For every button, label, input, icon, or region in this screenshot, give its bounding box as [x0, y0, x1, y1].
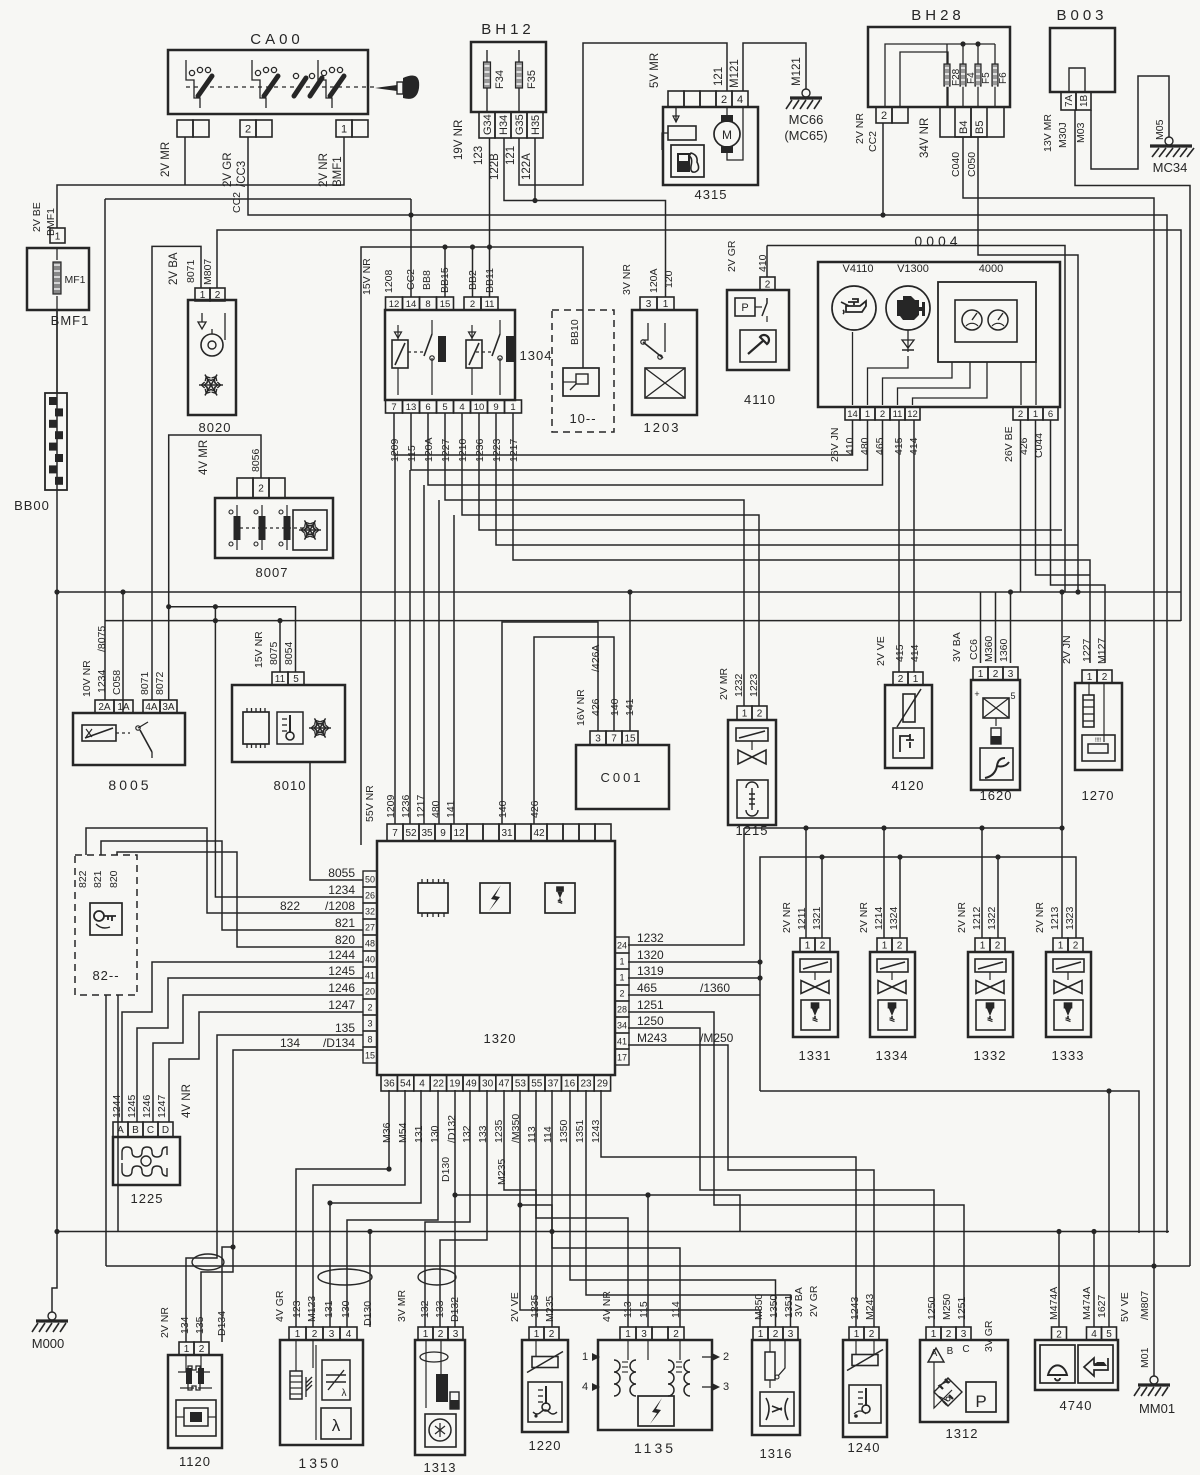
svg-text:1322: 1322 [986, 906, 998, 930]
svg-text:1: 1 [619, 973, 624, 983]
svg-text:MC34: MC34 [1153, 160, 1188, 175]
svg-text:35: 35 [421, 828, 433, 839]
svg-text:13: 13 [406, 402, 417, 413]
svg-text:480: 480 [430, 800, 442, 818]
svg-text:1: 1 [295, 1329, 301, 1340]
svg-text:822: 822 [77, 870, 89, 888]
svg-text:1251: 1251 [637, 998, 664, 1012]
svg-text:28: 28 [617, 1005, 627, 1015]
svg-text:140: 140 [497, 800, 509, 818]
svg-text:M235: M235 [496, 1159, 508, 1185]
svg-text:M05: M05 [1154, 119, 1166, 140]
svg-text:1: 1 [663, 299, 669, 310]
svg-text:47: 47 [498, 1079, 510, 1090]
svg-text:1323: 1323 [1064, 906, 1076, 930]
svg-text:1316: 1316 [760, 1446, 793, 1461]
svg-text:G34: G34 [482, 114, 494, 135]
svg-text:M121: M121 [729, 59, 741, 88]
svg-text:17: 17 [617, 1053, 627, 1063]
svg-text:P: P [741, 302, 748, 314]
svg-text:1227: 1227 [440, 438, 452, 462]
svg-text:1247: 1247 [328, 998, 355, 1012]
svg-text:5: 5 [1106, 1329, 1112, 1340]
svg-text:1234: 1234 [328, 883, 355, 897]
svg-text:1313: 1313 [424, 1460, 457, 1475]
svg-text:10: 10 [474, 402, 485, 413]
svg-text:130: 130 [429, 1125, 441, 1143]
svg-text:7: 7 [391, 402, 396, 413]
svg-text:M03: M03 [1075, 122, 1087, 143]
svg-text:1: 1 [1058, 941, 1064, 952]
svg-text:M121: M121 [791, 57, 803, 86]
svg-text:1: 1 [1087, 672, 1093, 683]
svg-text:410: 410 [844, 437, 856, 455]
svg-text:1203: 1203 [644, 420, 681, 435]
svg-text:12: 12 [389, 299, 400, 310]
svg-text:465: 465 [637, 981, 657, 995]
svg-text:B5: B5 [974, 121, 986, 134]
svg-text:M000: M000 [32, 1336, 65, 1351]
svg-text:1324: 1324 [888, 906, 900, 930]
svg-text:15: 15 [624, 734, 636, 745]
svg-text:54: 54 [400, 1079, 412, 1090]
svg-text:MF1: MF1 [65, 274, 86, 286]
svg-text:B: B [947, 1346, 954, 1357]
svg-text:1244: 1244 [111, 1094, 123, 1118]
svg-text:2: 2 [765, 280, 771, 291]
svg-text:3: 3 [1008, 669, 1014, 680]
svg-text:1: 1 [742, 709, 748, 720]
svg-text:2: 2 [245, 123, 251, 135]
svg-text:2V NR: 2V NR [854, 113, 866, 144]
svg-text:134: 134 [179, 1316, 191, 1334]
svg-text:3A: 3A [162, 702, 175, 713]
svg-text:1: 1 [865, 409, 870, 420]
svg-text:2: 2 [673, 1329, 679, 1340]
svg-text:122B: 122B [489, 153, 501, 180]
svg-text:4740: 4740 [1060, 1398, 1093, 1413]
svg-text:5: 5 [293, 674, 299, 685]
svg-text:1350: 1350 [768, 1294, 780, 1318]
svg-text:13V MR: 13V MR [1042, 114, 1054, 152]
svg-text:34: 34 [617, 1021, 627, 1031]
svg-text:1223: 1223 [748, 673, 760, 697]
svg-text:8: 8 [367, 1035, 372, 1045]
svg-text:2: 2 [723, 1351, 729, 1363]
svg-text:2: 2 [312, 1329, 318, 1340]
svg-text:12: 12 [907, 409, 918, 420]
svg-text:1223: 1223 [491, 438, 503, 462]
svg-text:55: 55 [531, 1079, 543, 1090]
svg-text:3V NR: 3V NR [621, 264, 633, 295]
svg-text:1: 1 [184, 1344, 190, 1355]
svg-text:3: 3 [961, 1329, 967, 1340]
svg-text:1333: 1333 [1052, 1048, 1085, 1063]
svg-text:1270: 1270 [1082, 788, 1115, 803]
svg-text:D130: D130 [362, 1301, 374, 1326]
svg-text:1120: 1120 [179, 1454, 211, 1469]
svg-text:40: 40 [365, 955, 375, 965]
svg-text:12: 12 [453, 828, 465, 839]
svg-text:26: 26 [365, 891, 375, 901]
svg-text:2: 2 [199, 1344, 205, 1355]
svg-text:822: 822 [280, 899, 300, 913]
svg-text:1: 1 [534, 1329, 540, 1340]
svg-text:MC66: MC66 [789, 112, 824, 127]
svg-text:5: 5 [1010, 691, 1015, 701]
svg-text:2: 2 [897, 941, 903, 952]
svg-text:1350: 1350 [558, 1119, 570, 1143]
svg-text:8072: 8072 [154, 671, 166, 695]
svg-text:C040: C040 [950, 152, 962, 177]
svg-text:CC6: CC6 [968, 639, 980, 660]
svg-text:1232: 1232 [733, 673, 745, 697]
svg-text:1240: 1240 [848, 1440, 881, 1455]
svg-text:1351: 1351 [574, 1119, 586, 1143]
svg-text:123: 123 [291, 1300, 303, 1318]
svg-text:4V MR: 4V MR [198, 440, 210, 475]
svg-text:1247: 1247 [156, 1094, 168, 1118]
svg-text:1235: 1235 [493, 1119, 505, 1143]
svg-text:26V BE: 26V BE [1003, 426, 1015, 462]
svg-text:50: 50 [365, 875, 375, 885]
svg-text:8: 8 [425, 299, 430, 310]
svg-text:H34: H34 [498, 115, 510, 135]
svg-text:F34: F34 [494, 70, 506, 89]
svg-text:1321: 1321 [811, 906, 823, 930]
svg-text:141: 141 [445, 800, 457, 818]
svg-text:1: 1 [625, 1329, 631, 1340]
svg-text:1212: 1212 [971, 906, 983, 930]
svg-text:1245: 1245 [126, 1094, 138, 1118]
svg-text:48: 48 [365, 939, 375, 949]
svg-text:/CC3: /CC3 [236, 161, 248, 187]
svg-text:820: 820 [108, 870, 120, 888]
svg-text:1250: 1250 [926, 1296, 938, 1320]
svg-text:8020: 8020 [199, 420, 232, 435]
svg-text:M235: M235 [544, 1296, 556, 1322]
svg-text:1246: 1246 [141, 1094, 153, 1118]
svg-text:1: 1 [978, 669, 984, 680]
svg-text:2V NR: 2V NR [781, 902, 793, 933]
svg-text:2: 2 [898, 674, 904, 685]
svg-text:M250: M250 [941, 1294, 953, 1320]
svg-text:82--: 82-- [92, 968, 119, 983]
svg-text:2V MR: 2V MR [718, 667, 730, 700]
svg-text:8054: 8054 [283, 641, 295, 665]
svg-text:134: 134 [280, 1036, 300, 1050]
svg-text:8007: 8007 [256, 565, 289, 580]
svg-text:8071: 8071 [139, 671, 151, 695]
svg-text:3V GR: 3V GR [983, 1320, 995, 1352]
svg-text:3: 3 [453, 1329, 459, 1340]
svg-text:820: 820 [335, 933, 355, 947]
svg-text:M: M [722, 128, 732, 142]
svg-text:15: 15 [365, 1051, 375, 1061]
svg-text:CA00: CA00 [250, 31, 304, 48]
svg-text:26V JN: 26V JN [829, 428, 841, 462]
svg-text:1: 1 [805, 941, 811, 952]
svg-text:2V JN: 2V JN [1061, 635, 1073, 664]
svg-text:9: 9 [440, 828, 446, 839]
svg-text:16V NR: 16V NR [575, 689, 587, 726]
svg-text:1620: 1620 [980, 788, 1013, 803]
svg-text:36: 36 [384, 1079, 396, 1090]
svg-text:4: 4 [1091, 1329, 1097, 1340]
svg-text:4: 4 [346, 1329, 352, 1340]
svg-text:F5: F5 [981, 72, 992, 84]
svg-text:M01: M01 [1139, 1347, 1151, 1368]
svg-text:15: 15 [440, 299, 451, 310]
svg-text:1250: 1250 [637, 1014, 664, 1028]
svg-text:1320: 1320 [484, 1031, 517, 1046]
svg-text:2: 2 [773, 1329, 779, 1340]
svg-text:2: 2 [881, 110, 887, 122]
svg-text:1235: 1235 [529, 1294, 541, 1318]
svg-text:2: 2 [946, 1329, 952, 1340]
svg-text:15V NR: 15V NR [253, 631, 265, 668]
svg-text:821: 821 [335, 916, 355, 930]
svg-text:2: 2 [549, 1329, 555, 1340]
svg-text:2: 2 [1102, 672, 1108, 683]
svg-text:1220: 1220 [529, 1438, 562, 1453]
svg-text:2: 2 [215, 290, 221, 301]
svg-text:49: 49 [466, 1079, 478, 1090]
svg-text:31: 31 [501, 828, 513, 839]
svg-text:2: 2 [258, 484, 264, 495]
svg-text:1: 1 [582, 1351, 588, 1363]
svg-text:1214: 1214 [873, 906, 885, 930]
svg-text:D130: D130 [440, 1157, 452, 1182]
svg-text:C001: C001 [600, 770, 643, 785]
svg-text:P: P [975, 1392, 986, 1411]
svg-text:1350: 1350 [298, 1455, 341, 1471]
svg-text:2: 2 [1056, 1330, 1062, 1341]
svg-text:1: 1 [423, 1329, 429, 1340]
svg-text:0004: 0004 [914, 233, 961, 249]
svg-text:1: 1 [1033, 409, 1038, 420]
svg-text:120A: 120A [423, 437, 435, 462]
svg-text:465: 465 [874, 437, 886, 455]
svg-text:3: 3 [329, 1329, 335, 1340]
svg-text:30: 30 [482, 1079, 494, 1090]
svg-text:7: 7 [611, 734, 617, 745]
svg-text:29: 29 [597, 1079, 609, 1090]
svg-text:F6: F6 [998, 72, 1009, 84]
svg-text:C050: C050 [966, 152, 978, 177]
svg-text:BB00: BB00 [14, 498, 50, 513]
svg-text:2V NR: 2V NR [159, 1307, 171, 1338]
svg-text:131: 131 [413, 1125, 425, 1143]
svg-text:1: 1 [55, 232, 61, 243]
svg-text:3: 3 [788, 1329, 794, 1340]
svg-text:1215: 1215 [736, 823, 769, 838]
svg-text:1217: 1217 [415, 794, 427, 818]
svg-text:1217: 1217 [508, 438, 520, 462]
svg-text:10--: 10-- [569, 411, 596, 426]
svg-text:M54: M54 [397, 1122, 409, 1143]
svg-text:42: 42 [533, 828, 545, 839]
svg-text:F35: F35 [526, 70, 538, 89]
svg-text:1304: 1304 [520, 348, 553, 363]
svg-text:53: 53 [515, 1079, 527, 1090]
svg-text:135: 135 [335, 1021, 355, 1035]
svg-text:2: 2 [880, 409, 885, 420]
svg-text:2: 2 [721, 94, 727, 106]
svg-text:1: 1 [200, 290, 206, 301]
svg-text:131: 131 [323, 1300, 335, 1318]
svg-text:4: 4 [737, 94, 743, 106]
svg-text:4315: 4315 [695, 187, 728, 202]
svg-text:3: 3 [595, 734, 601, 745]
svg-text:2: 2 [1018, 409, 1023, 420]
svg-text:120A: 120A [648, 268, 660, 293]
svg-text:32: 32 [365, 907, 375, 917]
svg-text:1320: 1320 [637, 948, 664, 962]
svg-text:2: 2 [820, 941, 826, 952]
svg-text:/1208: /1208 [325, 899, 355, 913]
svg-text:132: 132 [461, 1125, 473, 1143]
svg-text:/M250: /M250 [700, 1031, 734, 1045]
svg-text:4: 4 [582, 1381, 588, 1393]
svg-text:19: 19 [449, 1079, 461, 1090]
svg-text:8071: 8071 [185, 259, 197, 283]
svg-text:/M807: /M807 [1139, 1291, 1151, 1320]
svg-text:5V MR: 5V MR [649, 53, 661, 88]
svg-text:λ: λ [342, 1388, 347, 1399]
svg-text:2V GR: 2V GR [222, 152, 234, 187]
svg-text:8075: 8075 [268, 641, 280, 665]
svg-text:B4: B4 [958, 121, 970, 134]
svg-text:1: 1 [854, 1329, 860, 1340]
svg-text:2: 2 [869, 1329, 875, 1340]
svg-text:426: 426 [529, 800, 541, 818]
svg-text:4A: 4A [145, 702, 158, 713]
svg-text:41: 41 [365, 971, 375, 981]
svg-text:3V BA: 3V BA [951, 632, 963, 662]
svg-text:1360: 1360 [998, 638, 1010, 662]
svg-text:2V MR: 2V MR [160, 142, 172, 177]
svg-text:122A: 122A [521, 153, 533, 180]
svg-text:2: 2 [619, 989, 624, 999]
svg-text:1244: 1244 [328, 948, 355, 962]
svg-text:8010: 8010 [274, 778, 307, 793]
svg-text:3: 3 [723, 1381, 729, 1393]
svg-text:BMF1: BMF1 [332, 156, 344, 187]
svg-text:23: 23 [580, 1079, 592, 1090]
svg-text:1208: 1208 [383, 269, 395, 293]
svg-text:14: 14 [406, 299, 417, 310]
svg-text:2V NR: 2V NR [318, 153, 330, 187]
svg-text:123: 123 [473, 146, 485, 165]
svg-text:3V MR: 3V MR [396, 1289, 408, 1322]
svg-text:1319: 1319 [637, 964, 664, 978]
svg-text:11: 11 [893, 409, 903, 420]
svg-text:1232: 1232 [637, 931, 664, 945]
svg-text:1236: 1236 [474, 438, 486, 462]
svg-text:2: 2 [1073, 941, 1079, 952]
svg-text:BH28: BH28 [911, 7, 965, 24]
svg-text:C058: C058 [111, 670, 123, 695]
svg-text:3: 3 [646, 299, 652, 310]
svg-text:2V GR: 2V GR [808, 1285, 820, 1317]
svg-text:1: 1 [882, 941, 888, 952]
svg-text:8056: 8056 [250, 448, 262, 472]
svg-text:MM01: MM01 [1139, 1401, 1175, 1416]
svg-text:9: 9 [493, 402, 498, 413]
svg-text:M127: M127 [1096, 638, 1108, 664]
svg-text:2V GR: 2V GR [726, 240, 738, 272]
svg-text:M36: M36 [381, 1122, 393, 1143]
svg-text:G35: G35 [514, 114, 526, 135]
svg-text:8055: 8055 [328, 866, 355, 880]
svg-text:1: 1 [341, 123, 347, 135]
svg-text:/426A: /426A [590, 645, 602, 672]
svg-text:2V NR: 2V NR [1034, 902, 1046, 933]
svg-text:V4110: V4110 [843, 263, 874, 275]
svg-text:+: + [974, 689, 979, 699]
svg-text:1234: 1234 [96, 669, 108, 693]
svg-text:2V NR: 2V NR [956, 902, 968, 933]
svg-text:8005: 8005 [108, 777, 151, 793]
svg-text:H35: H35 [530, 115, 542, 135]
svg-text:19V NR: 19V NR [453, 120, 465, 160]
svg-text:2: 2 [470, 299, 475, 310]
svg-text:1332: 1332 [974, 1048, 1007, 1063]
svg-text:BB10: BB10 [569, 319, 581, 345]
svg-text:2V VE: 2V VE [875, 636, 887, 666]
svg-text:/8075: /8075 [96, 626, 108, 652]
svg-text:1: 1 [980, 941, 986, 952]
svg-text:/D132: /D132 [446, 1115, 458, 1143]
svg-text:CC2: CC2 [867, 131, 879, 152]
svg-text:115: 115 [406, 445, 418, 462]
svg-text:BB8: BB8 [421, 270, 433, 290]
svg-text:140: 140 [609, 698, 621, 716]
svg-text:1: 1 [913, 674, 919, 685]
svg-text:1: 1 [619, 957, 624, 967]
svg-text:1251: 1251 [956, 1296, 968, 1320]
svg-text:11: 11 [275, 674, 286, 685]
svg-text:7: 7 [392, 828, 398, 839]
svg-text:1: 1 [758, 1329, 764, 1340]
svg-text:3: 3 [641, 1329, 647, 1340]
svg-text:4V NR: 4V NR [181, 1084, 193, 1118]
svg-text:M360: M360 [983, 636, 995, 662]
svg-text:55V NR: 55V NR [364, 785, 376, 822]
svg-text:24: 24 [617, 941, 627, 951]
svg-text:11: 11 [485, 299, 495, 310]
svg-text:2V BA: 2V BA [168, 252, 180, 285]
svg-text:7A: 7A [1064, 94, 1075, 107]
svg-text:1225: 1225 [131, 1191, 164, 1206]
svg-text:52: 52 [405, 828, 417, 839]
svg-text:4V GR: 4V GR [274, 1290, 286, 1322]
svg-text:5V VE: 5V VE [1119, 1292, 1131, 1322]
svg-text:414: 414 [909, 644, 921, 662]
svg-text:3V BA: 3V BA [793, 1287, 805, 1317]
svg-text:M243: M243 [637, 1031, 667, 1045]
svg-text:10V NR: 10V NR [81, 660, 93, 697]
svg-text:415: 415 [894, 644, 906, 662]
svg-text:4000: 4000 [979, 263, 1003, 275]
svg-text:D: D [162, 1125, 169, 1136]
svg-text:5: 5 [442, 402, 447, 413]
svg-text:1: 1 [931, 1329, 937, 1340]
svg-text:821: 821 [92, 870, 104, 888]
svg-text:135: 135 [194, 1316, 206, 1334]
svg-text:1210: 1210 [457, 438, 469, 462]
